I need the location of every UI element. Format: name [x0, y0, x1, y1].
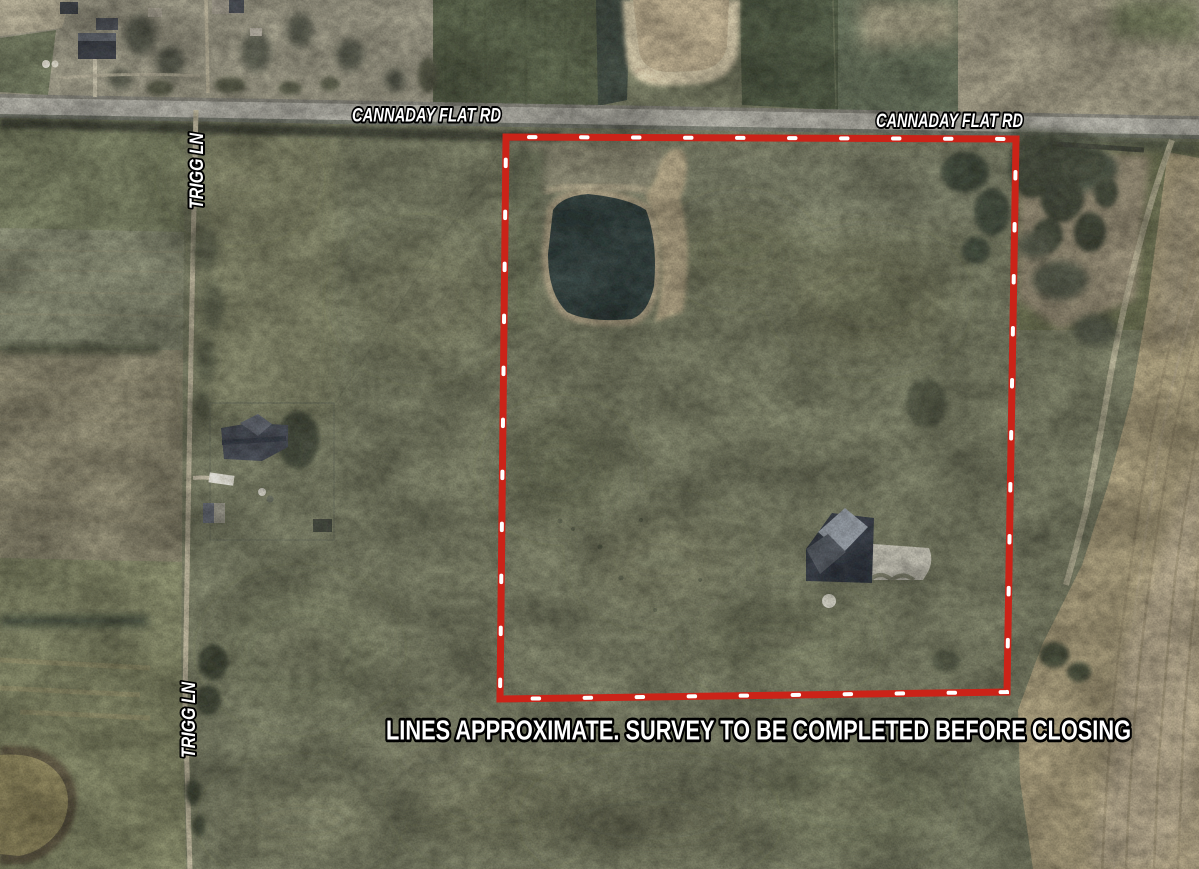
- svg-text:LINES APPROXIMATE. SURVEY TO B: LINES APPROXIMATE. SURVEY TO BE COMPLETE…: [386, 715, 1131, 746]
- svg-text:CANNADAY FLAT RD: CANNADAY FLAT RD: [352, 106, 501, 127]
- svg-text:TRIGG LN: TRIGG LN: [179, 681, 200, 758]
- svg-text:CANNADAY FLAT RD: CANNADAY FLAT RD: [876, 111, 1023, 132]
- svg-text:TRIGG LN: TRIGG LN: [187, 132, 208, 209]
